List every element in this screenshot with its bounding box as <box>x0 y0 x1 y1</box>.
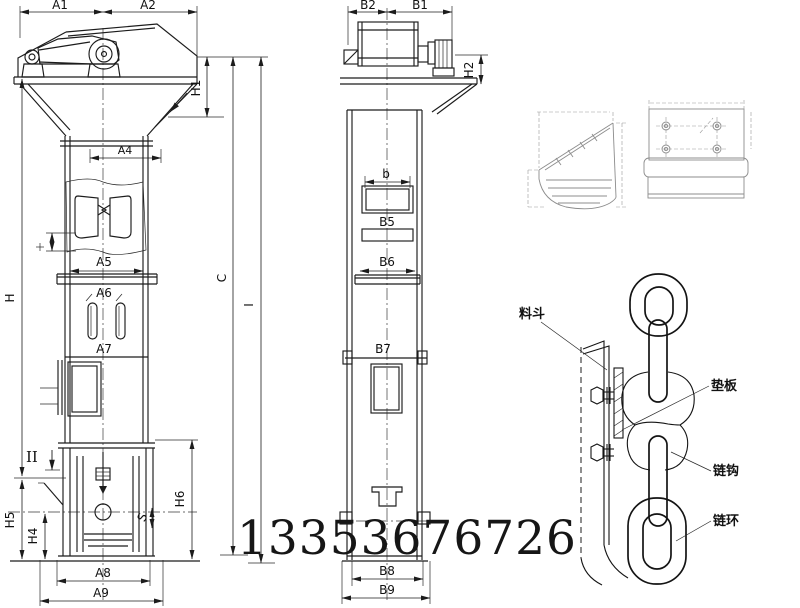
chain-hook-shape <box>622 372 694 470</box>
dim-label-h: H <box>3 293 17 302</box>
bolt-slots: A6 <box>86 286 125 339</box>
phone-watermark: 13353676726 <box>237 511 577 566</box>
section-label: II <box>26 448 38 466</box>
dim-h1: H1 <box>189 57 268 117</box>
dim-label-a6: A6 <box>96 286 112 300</box>
dim-h2: H2 <box>455 55 488 84</box>
head-pulley-side <box>344 22 454 76</box>
bucket-back-detail <box>644 100 751 198</box>
dim-label-b9: B9 <box>379 583 395 597</box>
dim-label-b7: B7 <box>375 342 391 356</box>
chain-link-middle <box>649 320 667 402</box>
bolt-lower <box>591 444 614 461</box>
inspection-door-front: A7 <box>40 342 148 416</box>
dim-label-h1: H1 <box>189 80 203 97</box>
drive-unit <box>22 36 120 77</box>
dim-label-b2: B2 <box>360 0 376 12</box>
bucket-wall-shape <box>581 341 628 585</box>
dim-label-h2: H2 <box>462 62 476 79</box>
dim-label-h5: H5 <box>3 512 17 529</box>
label-pad-plate: 垫板 <box>711 378 738 394</box>
label-chain-hook: 链钩 <box>712 463 739 479</box>
dim-label-h4: H4 <box>26 528 40 545</box>
dim-label-i: I <box>242 303 256 307</box>
bucket-elevator-drawing: A1 A2 <box>0 0 800 608</box>
front-view: A1 A2 <box>3 0 275 606</box>
dim-label-a2: A2 <box>140 0 156 12</box>
bolt-upper <box>591 387 614 404</box>
dim-label-a7: A7 <box>96 342 112 356</box>
dim-label-a9: A9 <box>93 586 109 600</box>
dim-label-b-small: b <box>382 167 390 181</box>
boot-dims-right: H6 S <box>134 440 198 559</box>
dim-a4: A4 <box>90 144 161 163</box>
platform-side <box>340 78 477 114</box>
chain-link-connector <box>649 436 667 526</box>
dim-label-a4: A4 <box>118 144 133 157</box>
label-bucket: 料斗 <box>519 306 545 322</box>
dim-label-h6: H6 <box>173 491 187 508</box>
bucket-section-detail <box>528 112 626 209</box>
dim-a5: A5 <box>57 255 157 284</box>
bucket-breakout <box>36 179 146 255</box>
dim-label-s: S <box>134 511 150 524</box>
chain-link-top <box>630 274 687 336</box>
dim-label-c: C <box>215 274 229 282</box>
front-bottom-dims: A8 A9 <box>40 560 163 606</box>
tension-screw <box>96 452 110 494</box>
section-mark: II <box>26 448 60 470</box>
height-dims-left: H H5 H4 <box>3 79 66 559</box>
overall-dims: C I <box>215 57 275 563</box>
dim-label-a8: A8 <box>95 566 111 580</box>
side-bottom-dims: B8 B9 <box>342 561 430 604</box>
dim-label-b1: B1 <box>412 0 428 12</box>
dim-b6: B6 <box>355 255 420 284</box>
label-chain-ring: 链环 <box>712 513 739 529</box>
lower-door-side: B7 <box>343 342 427 413</box>
upper-door-side: b B5 <box>362 167 413 241</box>
chain-link-bottom <box>628 498 686 584</box>
dim-label-a5: A5 <box>96 255 112 269</box>
dim-label-b8: B8 <box>379 564 395 578</box>
dim-label-a1: A1 <box>52 0 68 12</box>
dim-label-b6: B6 <box>379 255 395 269</box>
dim-label-b5: B5 <box>379 215 395 229</box>
